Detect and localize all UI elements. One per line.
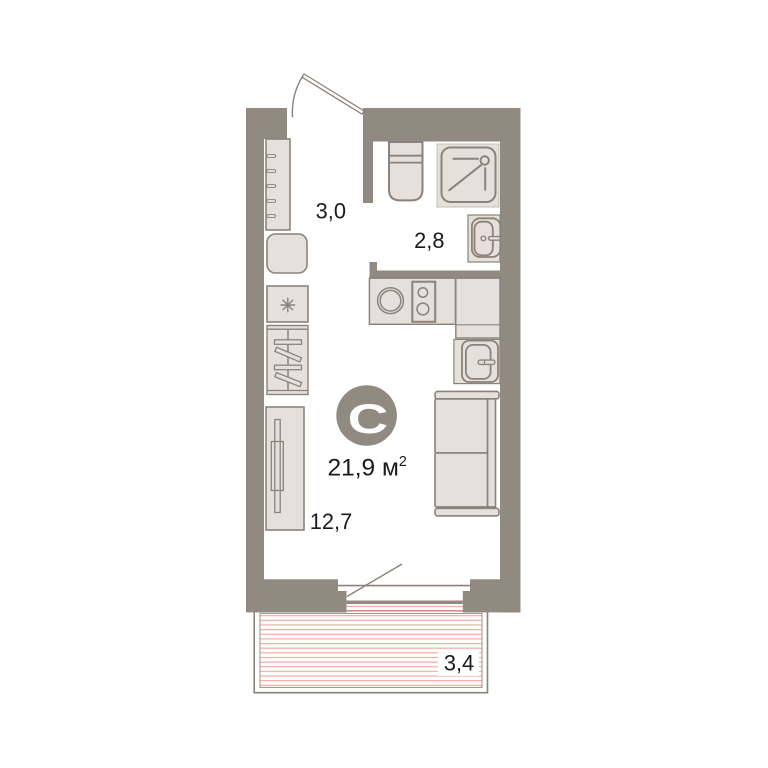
svg-text:3,4: 3,4: [444, 651, 474, 676]
svg-text:12,7: 12,7: [310, 509, 352, 534]
svg-text:2,8: 2,8: [414, 228, 444, 253]
svg-text:21,9 м2: 21,9 м2: [328, 454, 407, 481]
svg-text:С: С: [348, 396, 389, 442]
svg-text:3,0: 3,0: [316, 199, 346, 224]
